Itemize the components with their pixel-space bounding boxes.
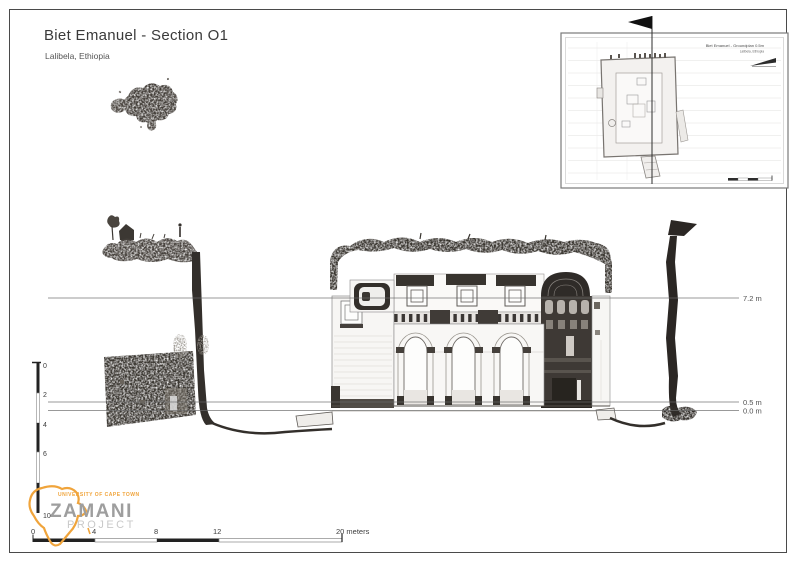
vscale-label-4: 4 — [43, 422, 47, 429]
vscale-label-6: 6 — [43, 451, 47, 458]
logo-institution: UNIVERSITY OF CAPE TOWN — [58, 492, 140, 498]
upper-window — [407, 286, 427, 306]
hscale-label-8: 8 — [154, 527, 158, 536]
elevation-label-7-2m: 7.2 m — [743, 294, 762, 303]
left-step — [296, 412, 333, 427]
inset-subtitle: Lalibela, Ethiopia — [740, 50, 765, 54]
hscale-label-12: 12 — [213, 527, 221, 536]
hscale-label-0: 0 — [31, 527, 35, 536]
hut-icon — [119, 224, 134, 240]
elevation-label-0-0m: 0.0 m — [743, 407, 762, 416]
vscale-label-2: 2 — [43, 392, 47, 399]
left-outcrop — [102, 215, 197, 262]
dome — [541, 272, 590, 300]
church-right-wall — [592, 296, 610, 406]
left-trench-wall — [104, 351, 196, 427]
frieze — [394, 310, 544, 325]
tree-icon — [107, 215, 119, 227]
clerestory — [350, 274, 544, 312]
arcade — [394, 324, 544, 406]
right-trench-wall — [610, 220, 697, 426]
church-section — [296, 233, 616, 427]
inset-title: Biet Emanuel - Groundplan 0.5m — [706, 43, 765, 48]
inset-map: Biet Emanuel - Groundplan 0.5m Lalibela,… — [561, 16, 788, 188]
upper-window — [457, 286, 477, 306]
section-drawing: 7.2 m 0.5 m 0.0 m 0 2 4 6 10 0 — [0, 0, 800, 566]
hscale-label-20-meters: 20 meters — [336, 527, 370, 536]
upper-window — [505, 286, 525, 306]
ethiopia-location-map — [111, 78, 178, 131]
vscale-label-0: 0 — [43, 363, 47, 370]
vertical-scalebar: 0 2 4 6 10 — [32, 363, 51, 521]
drawing-sheet: Biet Emanuel - Section O1 Lalibela, Ethi… — [0, 0, 800, 566]
section-flag-icon — [628, 16, 652, 29]
logo-project-word: PROJECT — [67, 519, 136, 531]
dark-wall — [541, 296, 592, 408]
church-left-wall — [331, 296, 394, 408]
